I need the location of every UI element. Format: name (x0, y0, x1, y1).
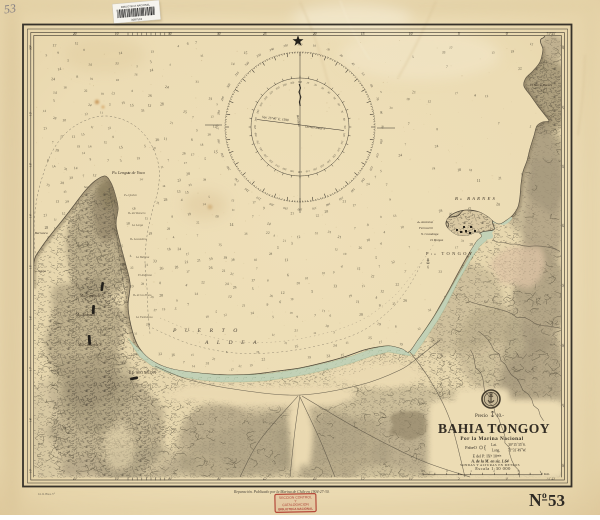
svg-text:24: 24 (435, 144, 439, 148)
svg-text:28: 28 (60, 181, 64, 185)
svg-text:26: 26 (160, 266, 164, 270)
svg-text:24: 24 (208, 96, 212, 100)
svg-text:P U E R T O: P U E R T O (172, 328, 241, 334)
svg-text:28: 28 (208, 133, 212, 137)
svg-text:17: 17 (52, 44, 56, 48)
svg-text:12: 12 (147, 103, 151, 107)
svg-text:12': 12' (29, 112, 33, 116)
svg-text:7: 7 (195, 41, 197, 45)
svg-text:19: 19 (146, 323, 150, 327)
svg-text:14: 14 (149, 68, 153, 73)
svg-text:19: 19 (343, 252, 347, 256)
svg-text:14': 14' (561, 223, 565, 227)
svg-text:11: 11 (284, 258, 288, 262)
svg-text:6: 6 (287, 273, 289, 277)
svg-text:17: 17 (252, 200, 256, 204)
svg-text:18': 18' (561, 463, 565, 467)
svg-text:24: 24 (225, 282, 229, 286)
svg-text:17: 17 (251, 279, 255, 283)
svg-text:15: 15 (130, 103, 134, 107)
svg-text:14: 14 (139, 177, 143, 181)
svg-text:10: 10 (116, 78, 120, 82)
svg-text:7: 7 (408, 122, 410, 126)
svg-text:Mna Centinela N.: Mna Centinela N. (79, 294, 105, 298)
svg-text:18: 18 (457, 168, 461, 172)
svg-text:28: 28 (359, 313, 363, 317)
svg-text:12: 12 (427, 100, 431, 104)
svg-text:15: 15 (145, 216, 149, 220)
svg-text:33: 33 (326, 354, 330, 358)
svg-text:33: 33 (115, 61, 119, 65)
svg-text:270: 270 (254, 124, 257, 129)
svg-text:13: 13 (56, 200, 60, 204)
svg-text:La Fastidiosa: La Fastidiosa (135, 315, 153, 319)
svg-text:BIBLIOTECA NACIONAL: BIBLIOTECA NACIONAL (278, 507, 313, 512)
svg-text:8: 8 (159, 281, 161, 285)
svg-text:18: 18 (406, 97, 410, 101)
svg-text:53: 53 (548, 491, 565, 510)
svg-text:22: 22 (201, 280, 205, 284)
svg-text:10.-: 10.- (496, 414, 504, 419)
svg-text:21: 21 (294, 329, 298, 333)
svg-text:Precio: Precio (475, 414, 488, 419)
svg-text:13: 13 (393, 214, 397, 218)
svg-text:14: 14 (88, 144, 92, 148)
svg-text:PabeO: PabeO (465, 445, 477, 450)
svg-text:Bo BARNES: Bo BARNES (455, 196, 497, 201)
svg-text:28: 28 (175, 265, 179, 269)
svg-text:30°: 30° (29, 45, 33, 50)
svg-text:19: 19 (223, 256, 227, 260)
svg-text:7: 7 (386, 183, 388, 187)
svg-text:13': 13' (29, 163, 33, 167)
svg-text:18: 18 (126, 222, 130, 226)
svg-text:12: 12 (228, 295, 232, 299)
svg-text:Lit. R. Hnos. V°: Lit. R. Hnos. V° (38, 493, 55, 496)
svg-text:33: 33 (153, 259, 157, 263)
svg-text:19: 19 (148, 232, 152, 236)
svg-text:Bo del Romero: Bo del Romero (128, 211, 146, 215)
svg-text:30': 30' (561, 45, 565, 49)
svg-text:15: 15 (368, 336, 372, 340)
svg-text:12: 12 (281, 291, 285, 295)
svg-text:26: 26 (403, 299, 407, 303)
svg-text:Ferrocarril: Ferrocarril (418, 226, 433, 230)
svg-text:24: 24 (398, 153, 402, 157)
svg-text:360: 360 (298, 81, 303, 84)
svg-text:22: 22 (84, 89, 88, 93)
svg-text:19: 19 (307, 355, 311, 359)
svg-text:19': 19' (29, 469, 33, 473)
svg-text:15: 15 (214, 150, 218, 154)
svg-text:14: 14 (88, 63, 92, 67)
svg-text:22: 22 (371, 274, 375, 278)
svg-text:11: 11 (356, 300, 360, 304)
svg-text:14: 14 (53, 91, 57, 95)
svg-text:Km.: Km. (544, 472, 550, 476)
svg-text:Pto TONGOY: Pto TONGOY (426, 251, 474, 256)
svg-text:Long.: Long. (492, 448, 501, 452)
svg-text:Pta Lengua de Vaca: Pta Lengua de Vaca (111, 170, 145, 175)
svg-text:28: 28 (233, 285, 237, 289)
svg-text:El Barrio Barnes: El Barrio Barnes (529, 83, 553, 87)
svg-text:33: 33 (438, 270, 442, 274)
svg-text:19 Morgan: 19 Morgan (430, 238, 444, 242)
svg-text:15: 15 (243, 51, 247, 55)
svg-text:24: 24 (177, 247, 181, 251)
svg-text:El Alefitoso: El Alefitoso (137, 273, 153, 277)
svg-text:N. Covadonga: N. Covadonga (420, 232, 439, 236)
svg-text:17': 17' (29, 367, 33, 371)
svg-text:22: 22 (266, 231, 270, 235)
svg-text:26: 26 (182, 152, 186, 156)
svg-text:N: N (529, 490, 542, 510)
svg-text:180: 180 (297, 170, 302, 173)
svg-text:14': 14' (29, 214, 33, 218)
svg-text:28: 28 (45, 226, 49, 230)
svg-text:Mna Redonda: Mna Redonda (75, 313, 95, 317)
svg-text:5: 5 (311, 290, 313, 294)
svg-text:A L D E A: A L D E A (204, 340, 260, 346)
svg-text:26: 26 (358, 246, 362, 250)
svg-text:10: 10 (322, 271, 326, 275)
svg-text:14: 14 (231, 62, 235, 66)
svg-text:BAHIA TONGOY: BAHIA TONGOY (438, 421, 550, 436)
svg-text:16': 16' (561, 343, 565, 347)
svg-text:15: 15 (341, 353, 345, 357)
svg-text:28: 28 (163, 198, 167, 202)
svg-text:1ra Aguja: 1ra Aguja (33, 269, 46, 273)
svg-text:Por la Marina Nacional: Por la Marina Nacional (460, 436, 523, 442)
svg-text:24: 24 (366, 182, 370, 186)
svg-text:14: 14 (74, 166, 78, 170)
svg-text:24: 24 (333, 344, 337, 348)
svg-text:7: 7 (107, 159, 109, 163)
svg-text:12: 12 (92, 173, 96, 177)
svg-text:28: 28 (159, 294, 163, 298)
svg-text:21: 21 (43, 213, 47, 217)
svg-text:17': 17' (561, 403, 565, 407)
svg-text:21: 21 (412, 90, 416, 94)
svg-text:15: 15 (218, 243, 222, 247)
svg-text:28: 28 (269, 252, 273, 256)
svg-text:13: 13 (333, 284, 337, 288)
svg-text:Pta Quelen: Pta Quelen (123, 193, 137, 197)
svg-text:17: 17 (455, 245, 459, 249)
svg-text:19: 19 (399, 342, 403, 346)
svg-text:14: 14 (162, 184, 166, 188)
svg-text:71°31´49˝W.: 71°31´49˝W. (508, 448, 527, 452)
svg-text:22: 22 (395, 282, 399, 286)
svg-text:11: 11 (313, 331, 316, 335)
svg-text:4: 4 (181, 198, 183, 202)
svg-text:Bo Lavandera: Bo Lavandera (130, 237, 147, 241)
svg-text:La Larga: La Larga (131, 223, 144, 227)
svg-text:17: 17 (352, 203, 356, 207)
svg-text:15: 15 (61, 212, 65, 216)
svg-text:15': 15' (561, 283, 565, 287)
svg-text:26: 26 (209, 266, 213, 270)
svg-text:30°15´35˝S.: 30°15´35˝S. (508, 443, 526, 447)
svg-text:22: 22 (158, 352, 162, 356)
svg-text:28: 28 (160, 103, 164, 107)
svg-text:6: 6 (427, 265, 429, 269)
svg-text:13': 13' (561, 164, 565, 168)
svg-text:26: 26 (148, 94, 152, 98)
svg-text:11: 11 (345, 341, 349, 345)
svg-text:12: 12 (84, 112, 88, 116)
svg-text:12: 12 (297, 235, 301, 239)
svg-text:14: 14 (230, 223, 234, 227)
svg-text:28: 28 (296, 281, 300, 285)
svg-text:{: { (484, 446, 487, 452)
svg-text:11: 11 (477, 179, 481, 183)
svg-text:16': 16' (29, 316, 33, 320)
svg-text:12': 12' (561, 105, 565, 109)
svg-text:18': 18' (29, 418, 33, 422)
svg-text:17: 17 (230, 368, 234, 372)
svg-text:90: 90 (381, 125, 385, 129)
svg-text:26: 26 (171, 353, 175, 357)
svg-text:12: 12 (380, 289, 384, 293)
svg-text:10: 10 (62, 118, 66, 122)
svg-text:31: 31 (315, 231, 319, 235)
svg-text:EL MONTON: EL MONTON (129, 371, 156, 375)
svg-text:15': 15' (29, 265, 33, 269)
svg-text:33: 33 (141, 109, 145, 113)
svg-text:24: 24 (51, 77, 55, 81)
svg-text:31: 31 (206, 361, 210, 365)
svg-text:Bo de los Pinos: Bo de los Pinos (133, 293, 152, 297)
svg-text:Mna Centinela S.: Mna Centinela S. (77, 343, 102, 347)
svg-text:5: 5 (277, 246, 279, 250)
svg-text:La Ballena: La Ballena (135, 255, 150, 259)
svg-text:21: 21 (185, 260, 189, 264)
svg-text:21: 21 (498, 176, 502, 180)
svg-text:5: 5 (252, 287, 254, 291)
svg-text:22: 22 (261, 357, 265, 361)
svg-text:31: 31 (195, 80, 199, 84)
svg-text:5: 5 (375, 256, 377, 260)
svg-text:26: 26 (155, 138, 159, 142)
svg-text:15: 15 (185, 190, 189, 194)
svg-text:4ta Ascension: 4ta Ascension (417, 220, 434, 224)
svg-text:Lat.: Lat. (491, 443, 497, 447)
svg-text:53: 53 (3, 1, 17, 17)
svg-text:33: 33 (442, 50, 446, 54)
svg-text:21: 21 (222, 269, 226, 273)
svg-text:21: 21 (290, 211, 294, 215)
